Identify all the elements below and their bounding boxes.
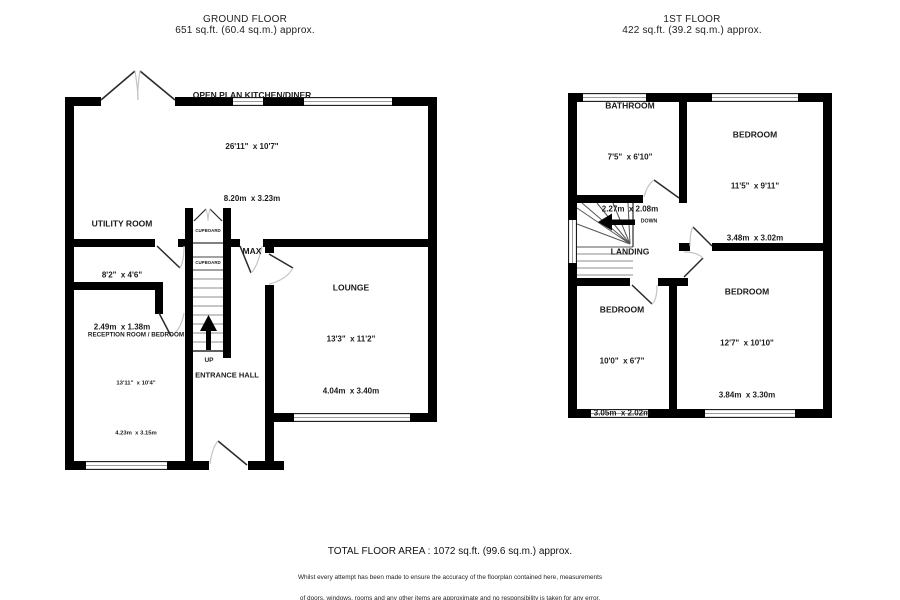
ground-floor-area: 651 sq.ft. (60.4 sq.m.) approx. bbox=[175, 25, 315, 36]
room-label-landing: LANDING bbox=[611, 204, 650, 277]
room-label-entrance-hall: ENTRANCE HALL bbox=[195, 371, 259, 379]
window bbox=[304, 97, 392, 106]
disclaimer: Whilst every attempt has been made to en… bbox=[296, 559, 604, 600]
disclaimer-line: Whilst every attempt has been made to en… bbox=[296, 574, 604, 581]
room-label-bedroom-bottom-right: BEDROOM 12'7" x 10'10" 3.84m x 3.30m bbox=[719, 244, 775, 421]
ground-floor-header: GROUND FLOOR 651 sq.ft. (60.4 sq.m.) app… bbox=[175, 14, 315, 36]
front-door bbox=[210, 441, 247, 465]
door-utility bbox=[157, 246, 184, 268]
door-bedroom-bottom-right bbox=[684, 252, 703, 277]
french-doors bbox=[101, 71, 175, 100]
window bbox=[568, 220, 577, 263]
disclaimer-line: of doors, windows, rooms and any other i… bbox=[296, 595, 604, 600]
down-label: DOWN bbox=[641, 219, 657, 224]
window bbox=[86, 461, 167, 470]
ground-floor-title: GROUND FLOOR bbox=[175, 14, 315, 25]
room-label-kitchen: OPEN PLAN KITCHEN/DINER 26'11" x 10'7" 8… bbox=[193, 48, 312, 278]
room-label-lounge: LOUNGE 13'3" x 11'2" 4.04m x 3.40m bbox=[323, 240, 379, 417]
first-floor-title: 1ST FLOOR bbox=[622, 14, 762, 25]
floorplan-page: GROUND FLOOR 651 sq.ft. (60.4 sq.m.) app… bbox=[0, 0, 900, 600]
room-label-reception: RECEPTION ROOM / BEDROOM 13'11" x 10'4" … bbox=[88, 289, 184, 458]
door-bedroom-top-right bbox=[690, 227, 712, 246]
first-floor-header: 1ST FLOOR 422 sq.ft. (39.2 sq.m.) approx… bbox=[622, 14, 762, 36]
total-floor-area: TOTAL FLOOR AREA : 1072 sq.ft. (99.6 sq.… bbox=[328, 546, 572, 557]
up-label: UP bbox=[204, 358, 213, 365]
room-label-bedroom-bottom-left: BEDROOM 10'0" x 6'7" 3.05m x 2.02m bbox=[594, 262, 650, 439]
first-floor-area: 422 sq.ft. (39.2 sq.m.) approx. bbox=[622, 25, 762, 36]
room-label-bedroom-top-right: BEDROOM 11'5" x 9'11" 3.48m x 3.02m bbox=[727, 87, 783, 264]
cupboard-label-2: CUPBOARD bbox=[195, 261, 220, 265]
cupboard-label-1: CUPBOARD bbox=[195, 229, 220, 233]
